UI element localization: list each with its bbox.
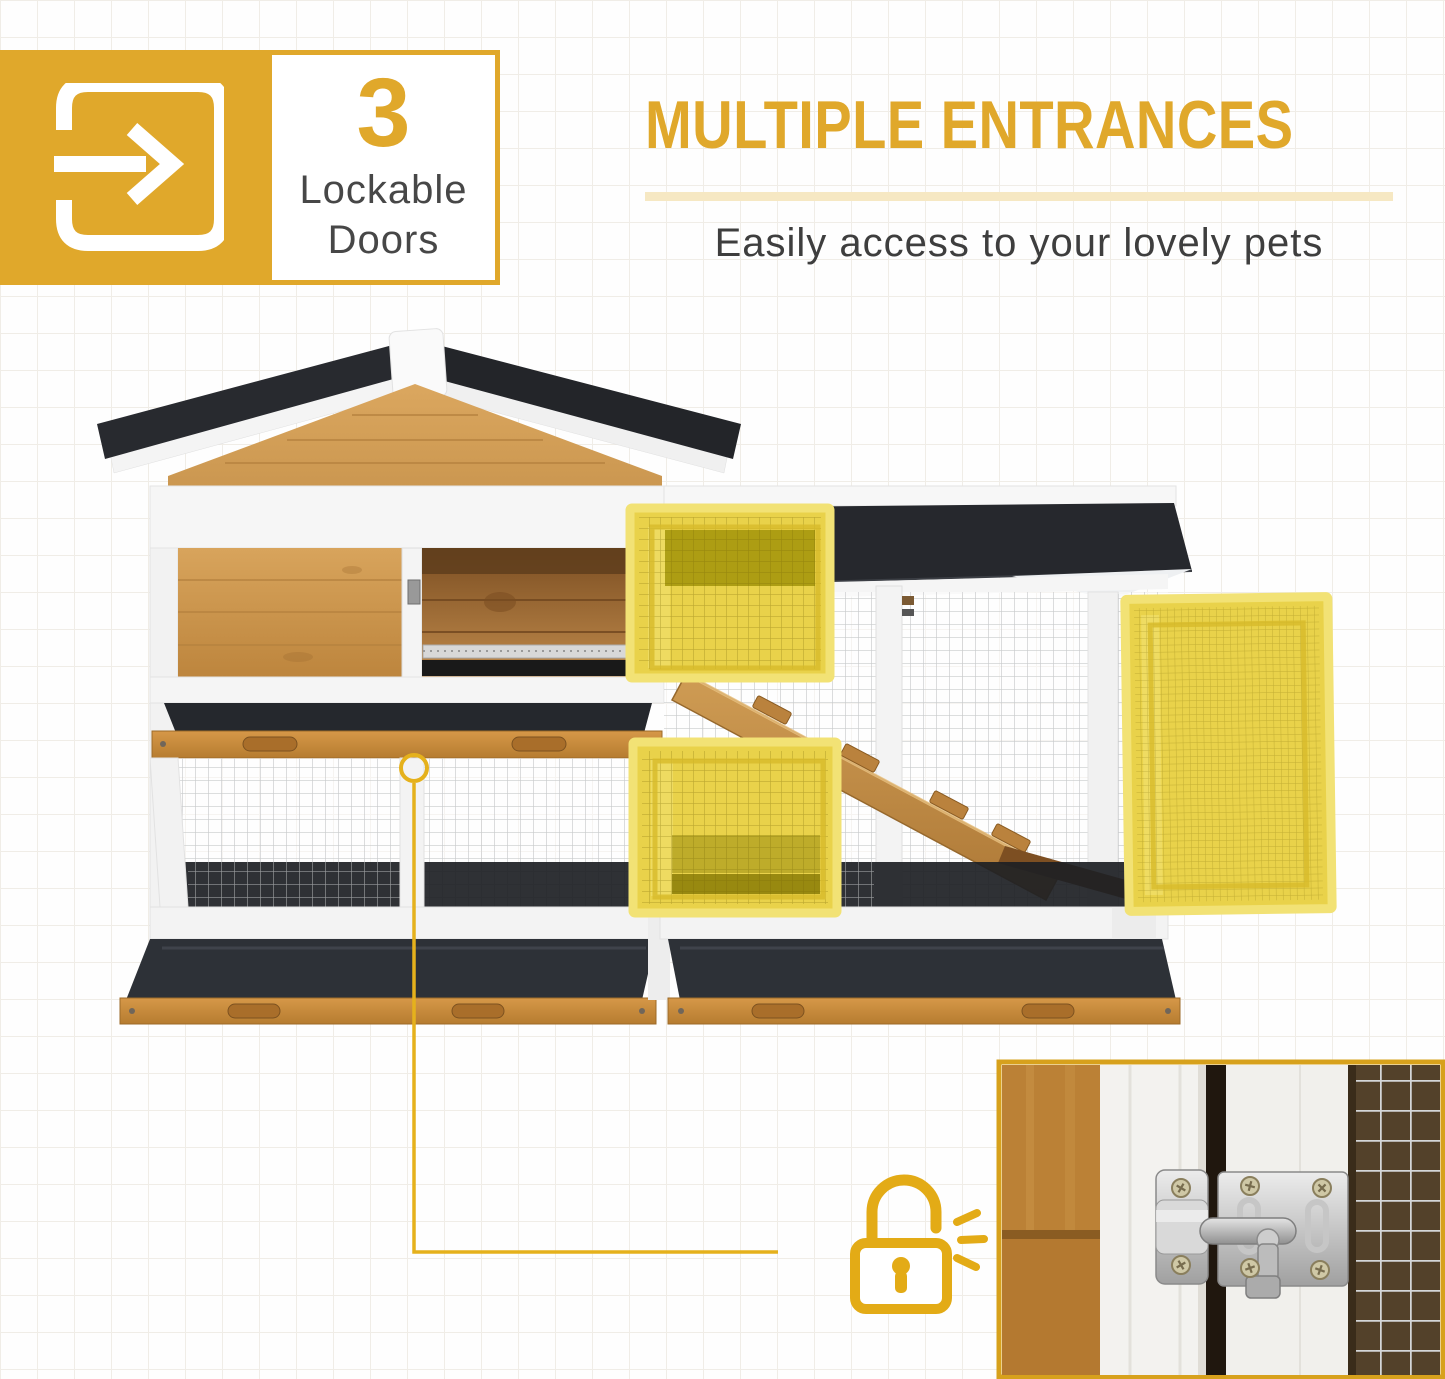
- badge-number: 3: [357, 72, 411, 154]
- upper-door-divider: [402, 548, 422, 677]
- infographic-canvas: 3 Lockable Doors MULTIPLE ENTRANCES Easi…: [0, 0, 1445, 1379]
- middle-pullout-tray: [152, 703, 662, 758]
- upper-story-front: [178, 548, 664, 677]
- tray-handle-slot: [228, 1004, 280, 1018]
- enter-door-arrow-icon: [54, 83, 224, 253]
- badge-label-line2: Doors: [328, 215, 440, 265]
- barrel-bolt-latch: [1156, 1170, 1348, 1298]
- title-underline: [645, 192, 1393, 201]
- tray-handle-slot: [243, 737, 297, 751]
- house-top-band: [150, 486, 664, 548]
- run-fascia-board: [664, 486, 1176, 506]
- tray-handle-slot: [512, 737, 566, 751]
- tray-handle-slot: [752, 1004, 804, 1018]
- highlight-door-upper-hutch: [630, 508, 830, 678]
- badge-icon-tile: [5, 55, 272, 280]
- tray-handle-slot: [452, 1004, 504, 1018]
- lower-mesh-front: [150, 758, 664, 939]
- highlight-door-lower-run: [633, 742, 837, 913]
- badge-text-panel: 3 Lockable Doors: [272, 55, 495, 280]
- feature-badge: 3 Lockable Doors: [0, 50, 500, 285]
- padlock-unlocked-icon: [855, 1180, 947, 1309]
- highlight-door-side-run: [1125, 597, 1332, 912]
- tray-handle-slot: [1022, 1004, 1074, 1018]
- bottom-pullout-tray: [120, 939, 656, 1024]
- section-subtitle: Easily access to your lovely pets: [645, 221, 1393, 266]
- badge-label-line1: Lockable: [299, 165, 467, 215]
- headline-block: MULTIPLE ENTRANCES Easily access to your…: [645, 86, 1395, 266]
- click-motion-dashes-icon: [957, 1213, 984, 1267]
- run-pullout-tray: [668, 939, 1180, 1024]
- latch-closeup-inset: [999, 1062, 1443, 1377]
- section-title: MULTIPLE ENTRANCES: [645, 86, 1264, 164]
- upper-door-latch: [408, 580, 420, 604]
